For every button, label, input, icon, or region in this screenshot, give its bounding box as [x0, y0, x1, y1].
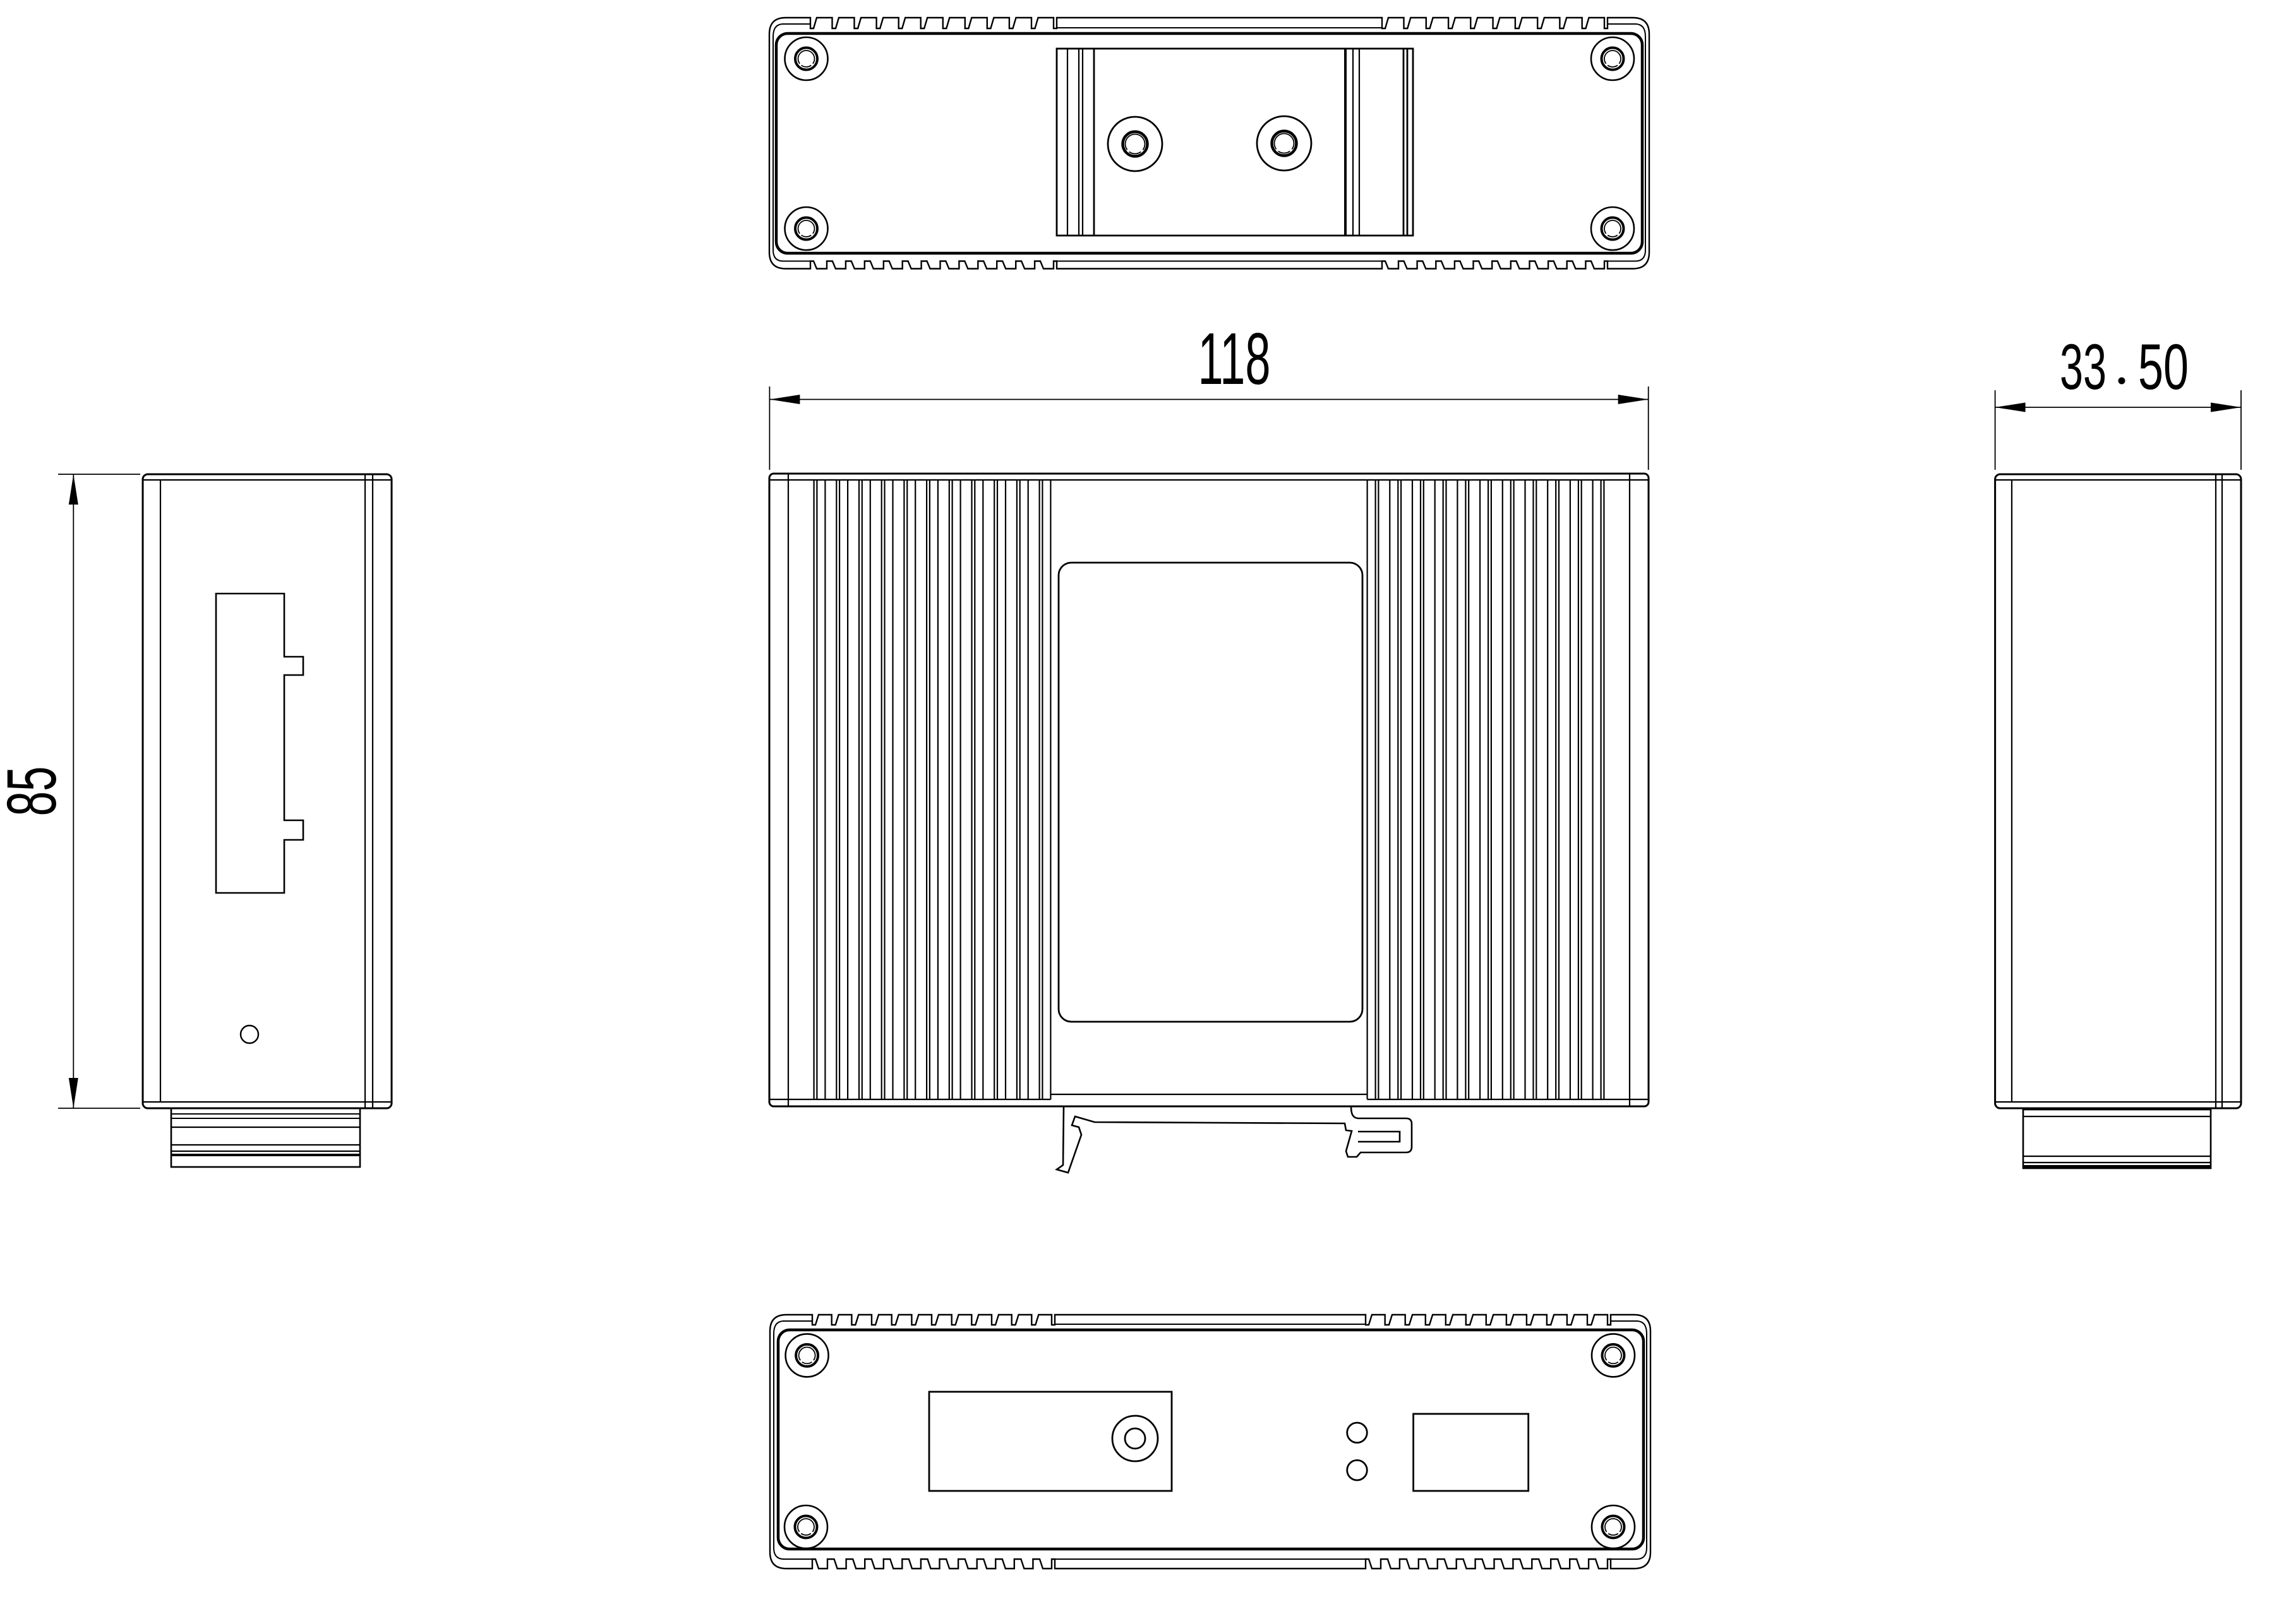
svg-text:85: 85 [0, 767, 71, 816]
svg-text:118: 118 [1198, 318, 1271, 400]
svg-text:33: 33 [2060, 331, 2107, 403]
svg-text:50: 50 [2138, 331, 2189, 403]
